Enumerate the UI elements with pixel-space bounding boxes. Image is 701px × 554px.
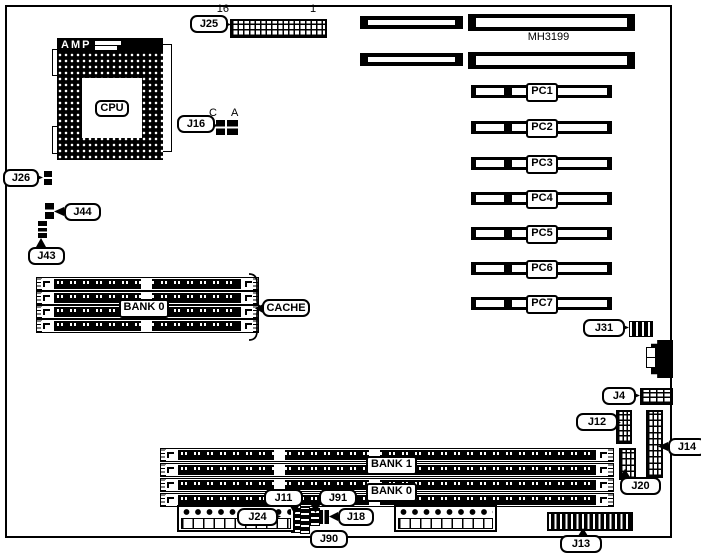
isa-slot xyxy=(360,16,463,29)
pci-slot-label: PC4 xyxy=(526,190,558,209)
jumper-j44 xyxy=(45,203,54,219)
j13-callout: J13 xyxy=(560,535,602,553)
connector-j12 xyxy=(616,410,632,444)
pci-slot: PC3 xyxy=(471,157,612,170)
pci-slot-label: PC2 xyxy=(526,119,558,138)
j44-callout: J44 xyxy=(64,203,101,221)
cpu-socket-header: AMP xyxy=(57,38,163,52)
pci-slot-label: PC6 xyxy=(526,260,558,279)
j20-callout: J20 xyxy=(620,477,661,495)
isa-slot xyxy=(468,14,635,31)
connector-j31 xyxy=(629,321,653,337)
j16-pin-a-label: A xyxy=(231,107,238,119)
j25-pin1-label: 1 xyxy=(310,3,320,15)
pci-slot: PC4 xyxy=(471,192,612,205)
j18-callout: J18 xyxy=(338,508,374,526)
j24-callout: J24 xyxy=(237,508,278,526)
connector-j25 xyxy=(230,19,327,38)
pci-slot: PC6 xyxy=(471,262,612,275)
amp-brand-label: AMP xyxy=(61,39,91,51)
cache-simm-slot xyxy=(36,277,259,291)
pci-slot-label: PC3 xyxy=(526,155,558,174)
keyboard-connector-pin xyxy=(646,357,656,368)
isa-slot xyxy=(468,52,635,69)
j31-callout: J31 xyxy=(583,319,625,337)
cpu-socket: CPU xyxy=(57,52,163,160)
jumper-j43 xyxy=(38,221,47,238)
cpu-socket-lever xyxy=(162,44,172,152)
j25-pin16-label: 16 xyxy=(213,3,229,15)
pci-slot: PC5 xyxy=(471,227,612,240)
j26-callout: J26 xyxy=(3,169,39,187)
motherboard-diagram: 16 1 J25 AMP CPU C A J16 J26 J44 J43 xyxy=(0,0,701,554)
j91-callout: J91 xyxy=(319,489,357,507)
connector-j14 xyxy=(646,410,663,478)
cache-simm-slot xyxy=(36,319,259,333)
memory-bank0-label: BANK 0 xyxy=(366,483,417,502)
socket-header-mark xyxy=(95,46,117,50)
j43-callout: J43 xyxy=(28,247,65,265)
power-connector-right xyxy=(394,505,497,532)
connector-j18 xyxy=(319,510,329,524)
j4-callout: J4 xyxy=(602,387,636,405)
board-part-number: MH3199 xyxy=(515,31,582,44)
cache-callout: CACHE xyxy=(262,299,310,317)
j14-callout: J14 xyxy=(668,438,701,456)
memory-bank1-label: BANK 1 xyxy=(366,456,417,475)
pci-slot: PC2 xyxy=(471,121,612,134)
socket-header-mark xyxy=(95,41,121,45)
j11-callout: J11 xyxy=(264,489,303,507)
pci-slot: PC1 xyxy=(471,85,612,98)
connector-j13 xyxy=(547,512,633,531)
jumper-j16 xyxy=(216,120,238,135)
jumper-j26 xyxy=(44,171,52,185)
j25-callout: J25 xyxy=(190,15,228,33)
connector-j90 xyxy=(300,507,310,534)
j16-callout: J16 xyxy=(177,115,215,133)
isa-slot xyxy=(360,53,463,66)
pci-slot-label: PC5 xyxy=(526,225,558,244)
cpu-label: CPU xyxy=(95,100,128,117)
pci-slot: PC7 xyxy=(471,297,612,310)
pci-slot-label: PC7 xyxy=(526,295,558,314)
j12-callout: J12 xyxy=(576,413,618,431)
pci-slot-label: PC1 xyxy=(526,83,558,102)
connector-j4 xyxy=(640,388,673,405)
cpu-socket-cavity: CPU xyxy=(82,78,142,138)
cache-bank0-label: BANK 0 xyxy=(119,299,169,318)
j90-callout: J90 xyxy=(310,530,348,548)
